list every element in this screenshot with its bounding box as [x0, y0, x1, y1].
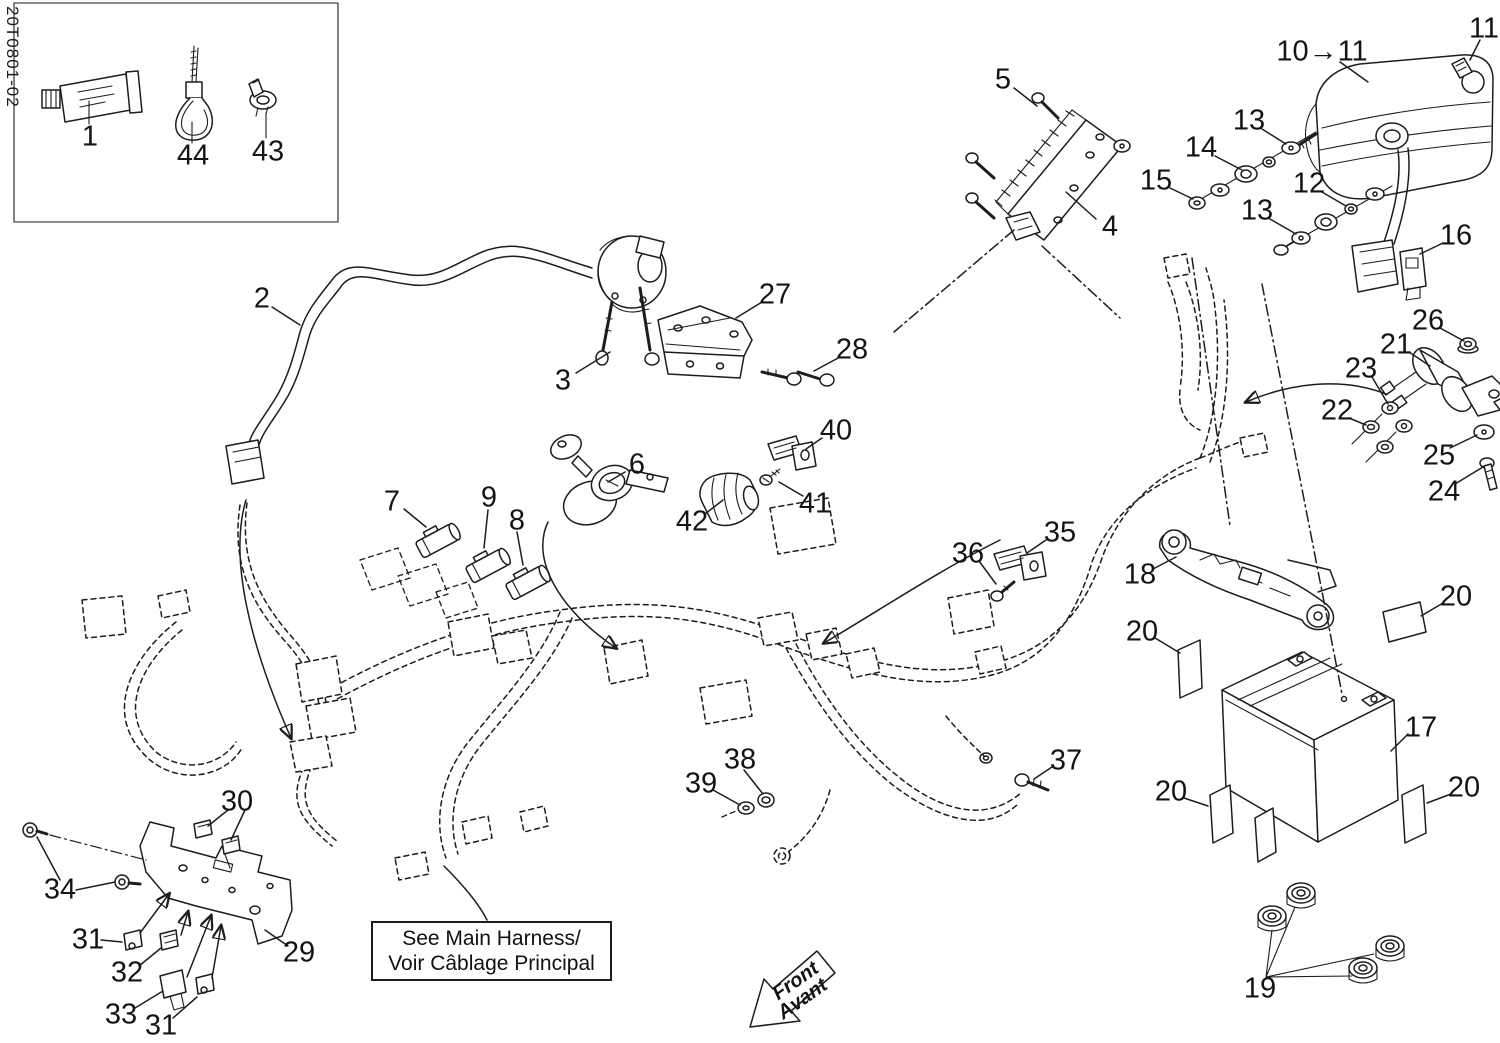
part-label-47-31: 31: [145, 1010, 177, 1043]
part-label-28-9: 9: [481, 482, 497, 515]
part-label-41-39: 39: [685, 768, 717, 801]
part-label-38-19: 19: [1244, 973, 1276, 1006]
part-label-19-25: 25: [1423, 440, 1455, 473]
part-label-8-11: 11: [1469, 13, 1499, 46]
part-label-1-44: 44: [177, 140, 209, 173]
part-label-5-5: 5: [995, 64, 1011, 97]
part-label-48-29: 29: [283, 937, 315, 970]
part-label-39-37: 37: [1050, 745, 1082, 778]
part-label-12-12: 12: [1293, 168, 1325, 201]
part-label-40-38: 38: [724, 744, 756, 777]
part-label-13-13: 13: [1241, 195, 1273, 228]
part-label-0-1: 1: [82, 121, 98, 154]
part-label-36-20: 20: [1155, 776, 1187, 809]
part-label-2-43: 43: [252, 136, 284, 169]
part-label-43-34: 34: [44, 874, 76, 907]
part-label-4-3: 3: [555, 365, 571, 398]
part-label-31-36: 36: [952, 538, 984, 571]
part-label-35-17: 17: [1405, 712, 1437, 745]
part-label-30-35: 35: [1044, 517, 1076, 550]
part-label-25-42: 42: [676, 506, 708, 539]
exploded-parts-diagram: { "doc": { "drawing_code": "20T0801-02",…: [0, 0, 1500, 1042]
part-label-21-27: 27: [759, 279, 791, 312]
part-label-34-20: 20: [1440, 581, 1472, 614]
part-label-6-4: 4: [1102, 211, 1118, 244]
part-label-46-33: 33: [105, 999, 137, 1032]
part-label-23-40: 40: [820, 415, 852, 448]
part-label-27-7: 7: [384, 486, 400, 519]
part-label-42-30: 30: [221, 786, 253, 819]
part-label-33-20: 20: [1126, 616, 1158, 649]
part-label-14-16: 16: [1440, 220, 1472, 253]
part-label-18-22: 22: [1321, 395, 1353, 428]
part-label-17-23: 23: [1345, 353, 1377, 386]
part-label-10-14: 14: [1185, 132, 1217, 165]
part-label-26-6: 6: [629, 449, 645, 482]
part-label-44-31: 31: [72, 924, 104, 957]
part-labels-layer: 14443235410→1111131415121316262123222524…: [0, 0, 1500, 1042]
part-label-24-41: 41: [799, 488, 831, 521]
part-label-16-21: 21: [1380, 329, 1412, 362]
part-label-20-24: 24: [1428, 476, 1460, 509]
part-label-9-13: 13: [1233, 105, 1265, 138]
part-label-32-18: 18: [1124, 559, 1156, 592]
part-label-15-26: 26: [1412, 305, 1444, 338]
part-label-45-32: 32: [111, 957, 143, 990]
part-label-22-28: 28: [836, 334, 868, 367]
part-label-3-2: 2: [254, 283, 270, 316]
part-label-37-20: 20: [1448, 772, 1480, 805]
part-label-29-8: 8: [509, 505, 525, 538]
part-label-7-10→11: 10→11: [1276, 36, 1367, 69]
part-label-11-15: 15: [1140, 165, 1172, 198]
